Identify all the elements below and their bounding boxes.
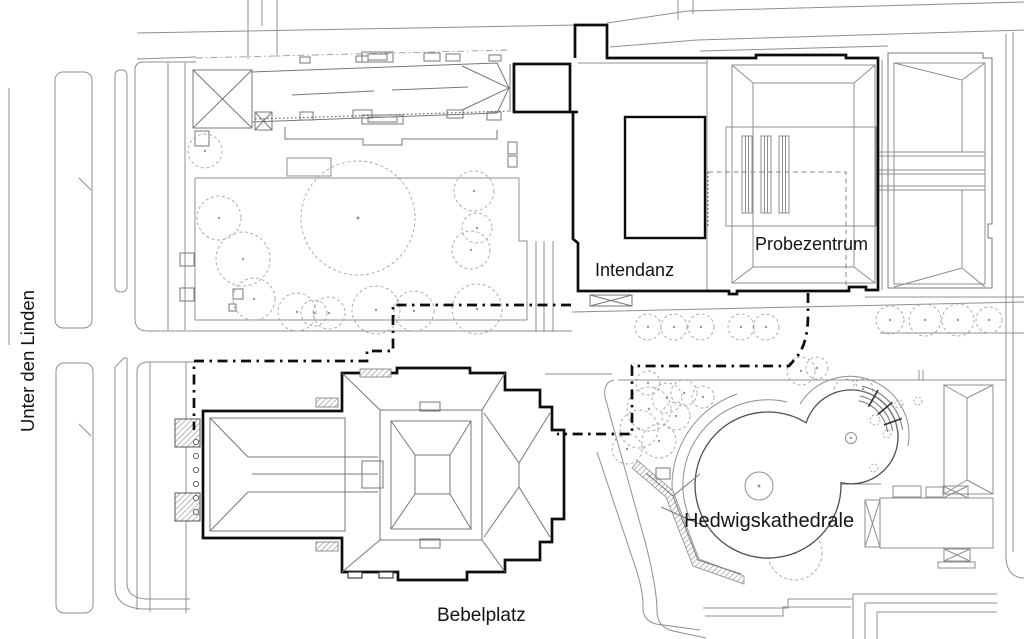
site-plan-drawing: Unter den Linden Intendanz Probezentrum … xyxy=(0,0,1024,639)
probezentrum-roof xyxy=(578,60,882,292)
intendanz-building xyxy=(514,25,878,306)
label-bebelplatz: Bebelplatz xyxy=(437,605,526,626)
connection-route xyxy=(194,293,808,434)
label-intendanz: Intendanz xyxy=(595,260,674,280)
label-unter-den-linden: Unter den Linden xyxy=(17,290,38,432)
hedwigskathedrale-area xyxy=(612,357,993,584)
label-probezentrum: Probezentrum xyxy=(755,234,868,254)
intendanz-courtyard xyxy=(625,117,705,238)
cathedral-outline xyxy=(695,390,898,558)
tree-circles xyxy=(188,134,1002,340)
site-plan-page: Unter den Linden Intendanz Probezentrum … xyxy=(0,0,1024,639)
linden-wing-building xyxy=(193,50,513,146)
magazin-building xyxy=(879,53,992,288)
staatsoper-building xyxy=(175,368,564,580)
label-hedwigskathedrale: Hedwigskathedrale xyxy=(684,510,854,532)
